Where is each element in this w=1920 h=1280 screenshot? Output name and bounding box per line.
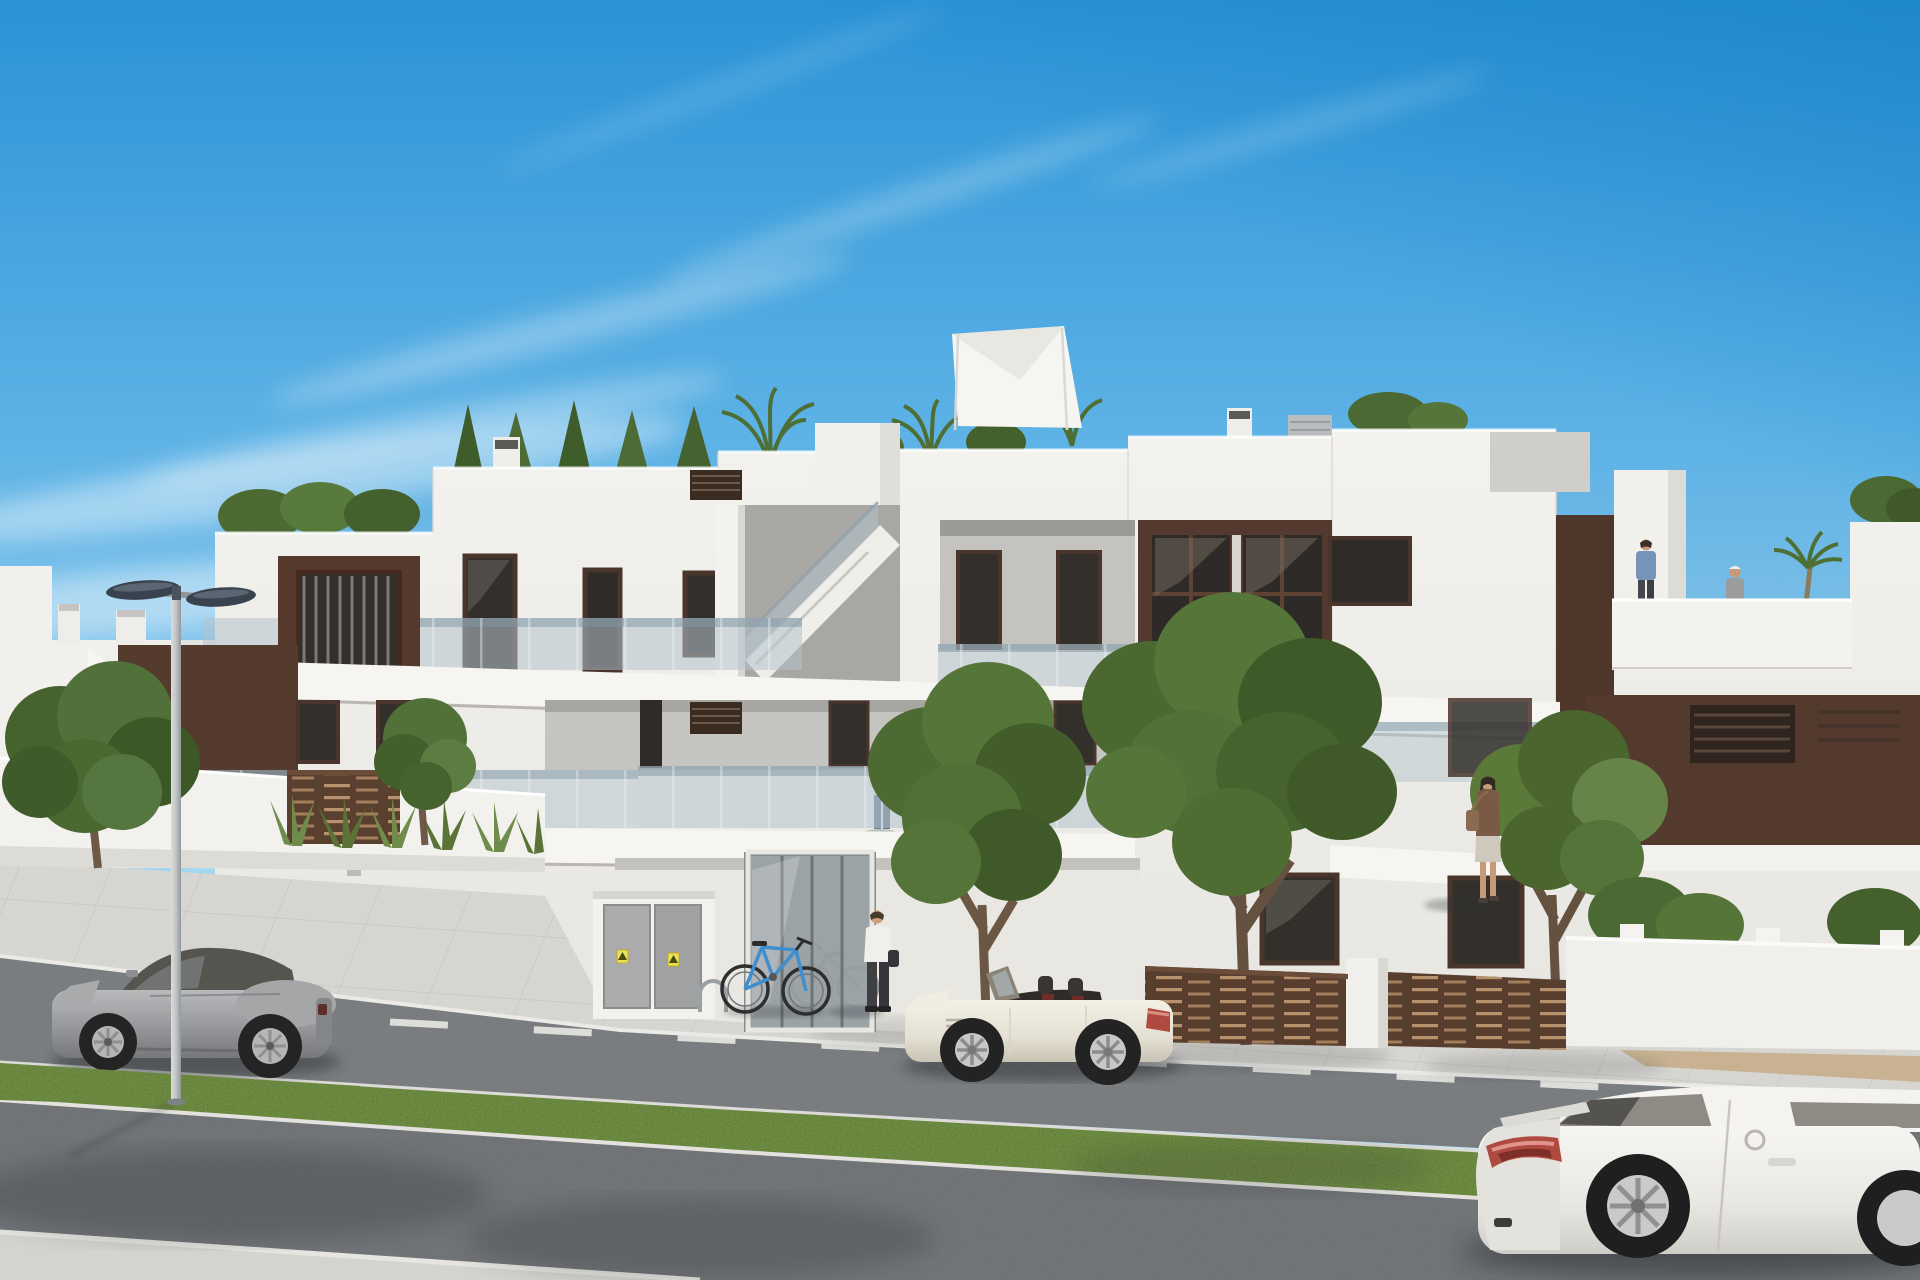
render-canvas [0,0,1920,1280]
utility-cabinet [593,891,715,1019]
shade-sail [952,326,1082,430]
architectural-render [0,0,1920,1280]
car-white-coupe [1460,1086,1920,1278]
